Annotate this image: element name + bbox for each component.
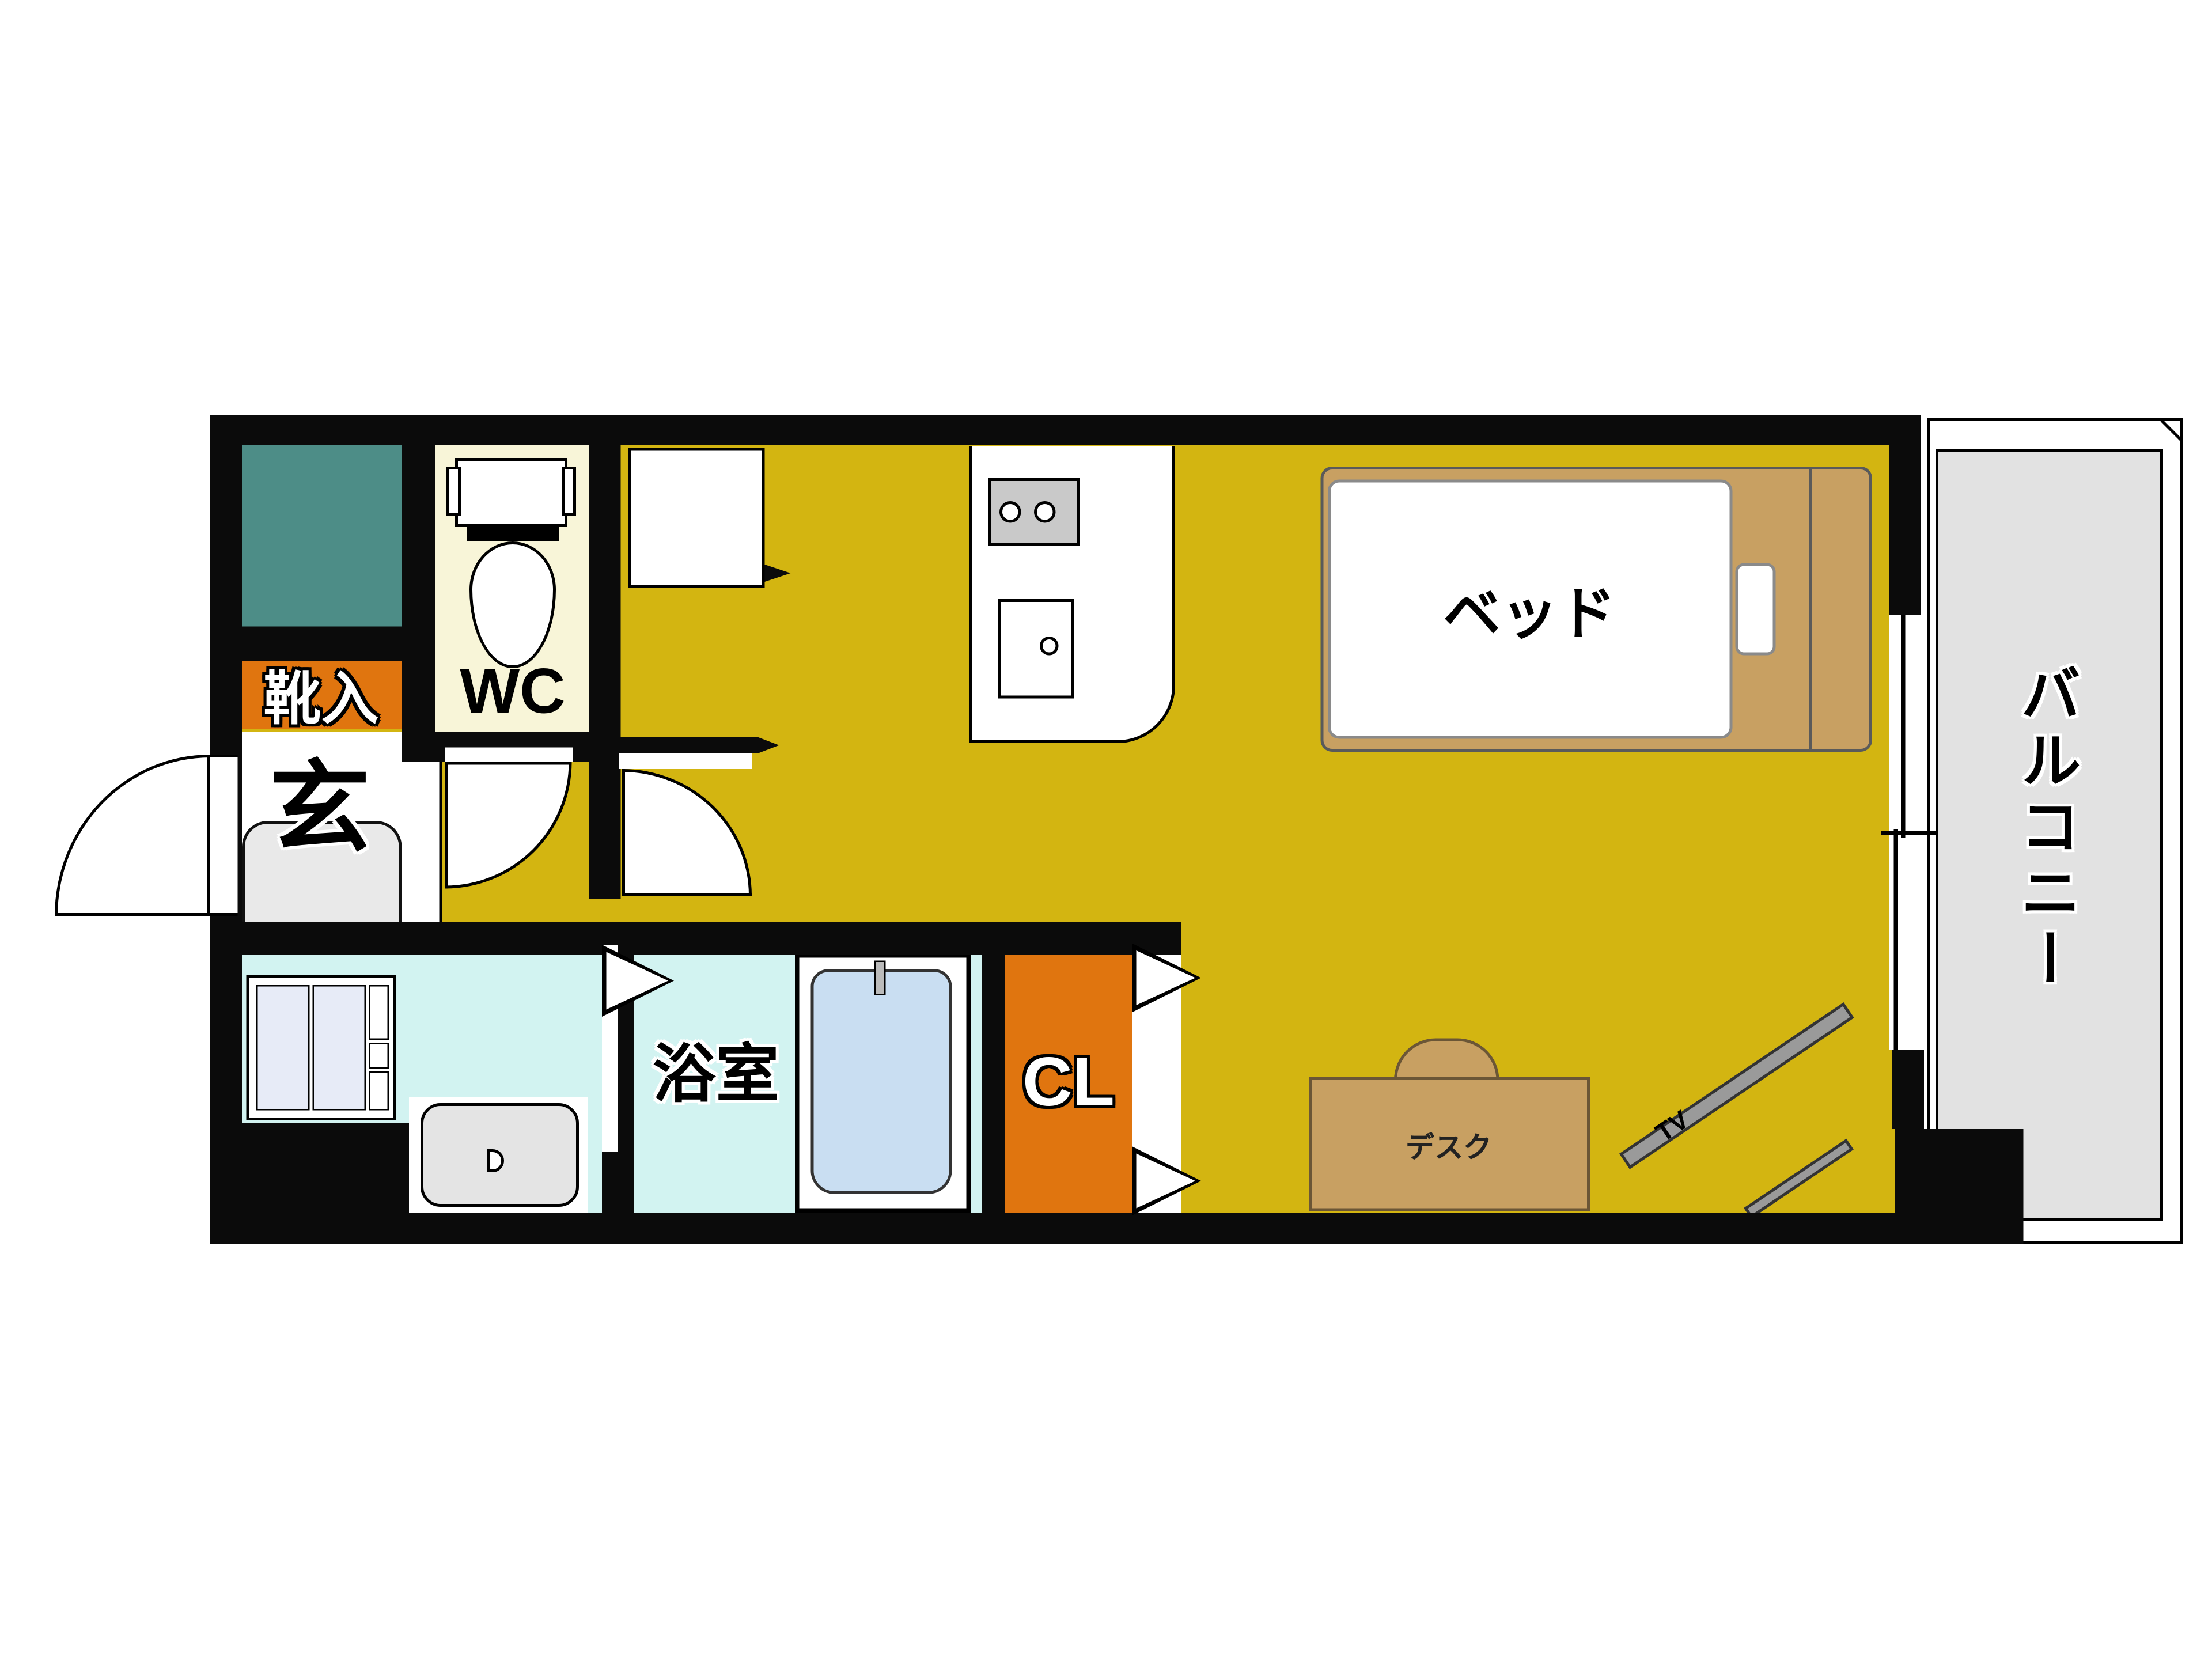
balcony-label: バルコニー — [2002, 662, 2090, 994]
wall-kitchen-stub-tapered — [607, 737, 779, 753]
shoe-cabinet-label: 靴入 — [264, 653, 379, 736]
washer-door-right — [313, 985, 366, 1111]
wall-bottom — [210, 1213, 2024, 1244]
wall-storage-wc — [402, 415, 435, 762]
desk-label: デスク — [1406, 1124, 1492, 1166]
pillow — [1736, 563, 1776, 656]
bathtub-basin — [811, 969, 952, 1194]
bathroom-label: 浴室 — [653, 1022, 779, 1115]
wall-left-upper — [210, 415, 242, 755]
washer-door-left — [256, 985, 310, 1111]
wall-wc-kitchen — [589, 415, 621, 899]
refrigerator-space — [628, 448, 765, 588]
toilet-tank-side-right — [562, 467, 576, 516]
balcony-window-pane-lower — [1894, 829, 1899, 1050]
washer-tray-bottom — [369, 1071, 389, 1111]
wall-corridor-bottom — [210, 922, 1181, 955]
balcony-window-overlap-tick — [1881, 831, 1938, 836]
tv-board: TV — [1616, 1028, 1918, 1215]
bathtub-faucet-icon — [874, 961, 886, 995]
bed-label: ベッド — [1443, 567, 1616, 651]
wall-bottom-left-block — [210, 1123, 409, 1244]
wall-bath-closet — [982, 955, 1005, 1213]
toilet-tank-side-left — [446, 467, 461, 516]
stove-burner-left-icon — [999, 501, 1021, 523]
washer-tray-top — [369, 985, 389, 1040]
stove-burner-right-icon — [1034, 501, 1056, 523]
wall-step-block — [1895, 1129, 2024, 1244]
wall-top — [210, 415, 1921, 445]
storage-room — [242, 445, 402, 627]
kitchen-sink — [998, 599, 1075, 699]
wc-door-threshold — [445, 748, 574, 762]
toilet-seat-band — [467, 524, 559, 541]
kitchen-faucet-icon — [1040, 637, 1059, 656]
wall-right-upper — [1889, 415, 1921, 615]
entrance-label: 玄 — [270, 728, 370, 874]
floor-plan: バルコニー ベッド デスク TV — [0, 0, 2212, 1659]
bed-headboard-line — [1809, 469, 1812, 749]
entrance-doorway-inner-line — [238, 755, 243, 916]
closet-label: CL — [1022, 1043, 1115, 1123]
entrance-door-swing — [55, 755, 210, 916]
wall-right-mid-block — [1892, 1050, 1924, 1130]
toilet-tank — [455, 458, 567, 527]
tv-stand — [1744, 1139, 1854, 1219]
room-door-threshold — [619, 753, 752, 770]
genkan-divider-line — [440, 762, 442, 922]
entrance-doorway-gap — [210, 755, 238, 916]
bathtub — [795, 953, 971, 1213]
wc-label: WC — [460, 657, 565, 729]
washing-machine — [247, 975, 396, 1121]
balcony-window-pane-upper — [1901, 615, 1906, 839]
washer-tray-mid — [369, 1043, 389, 1069]
